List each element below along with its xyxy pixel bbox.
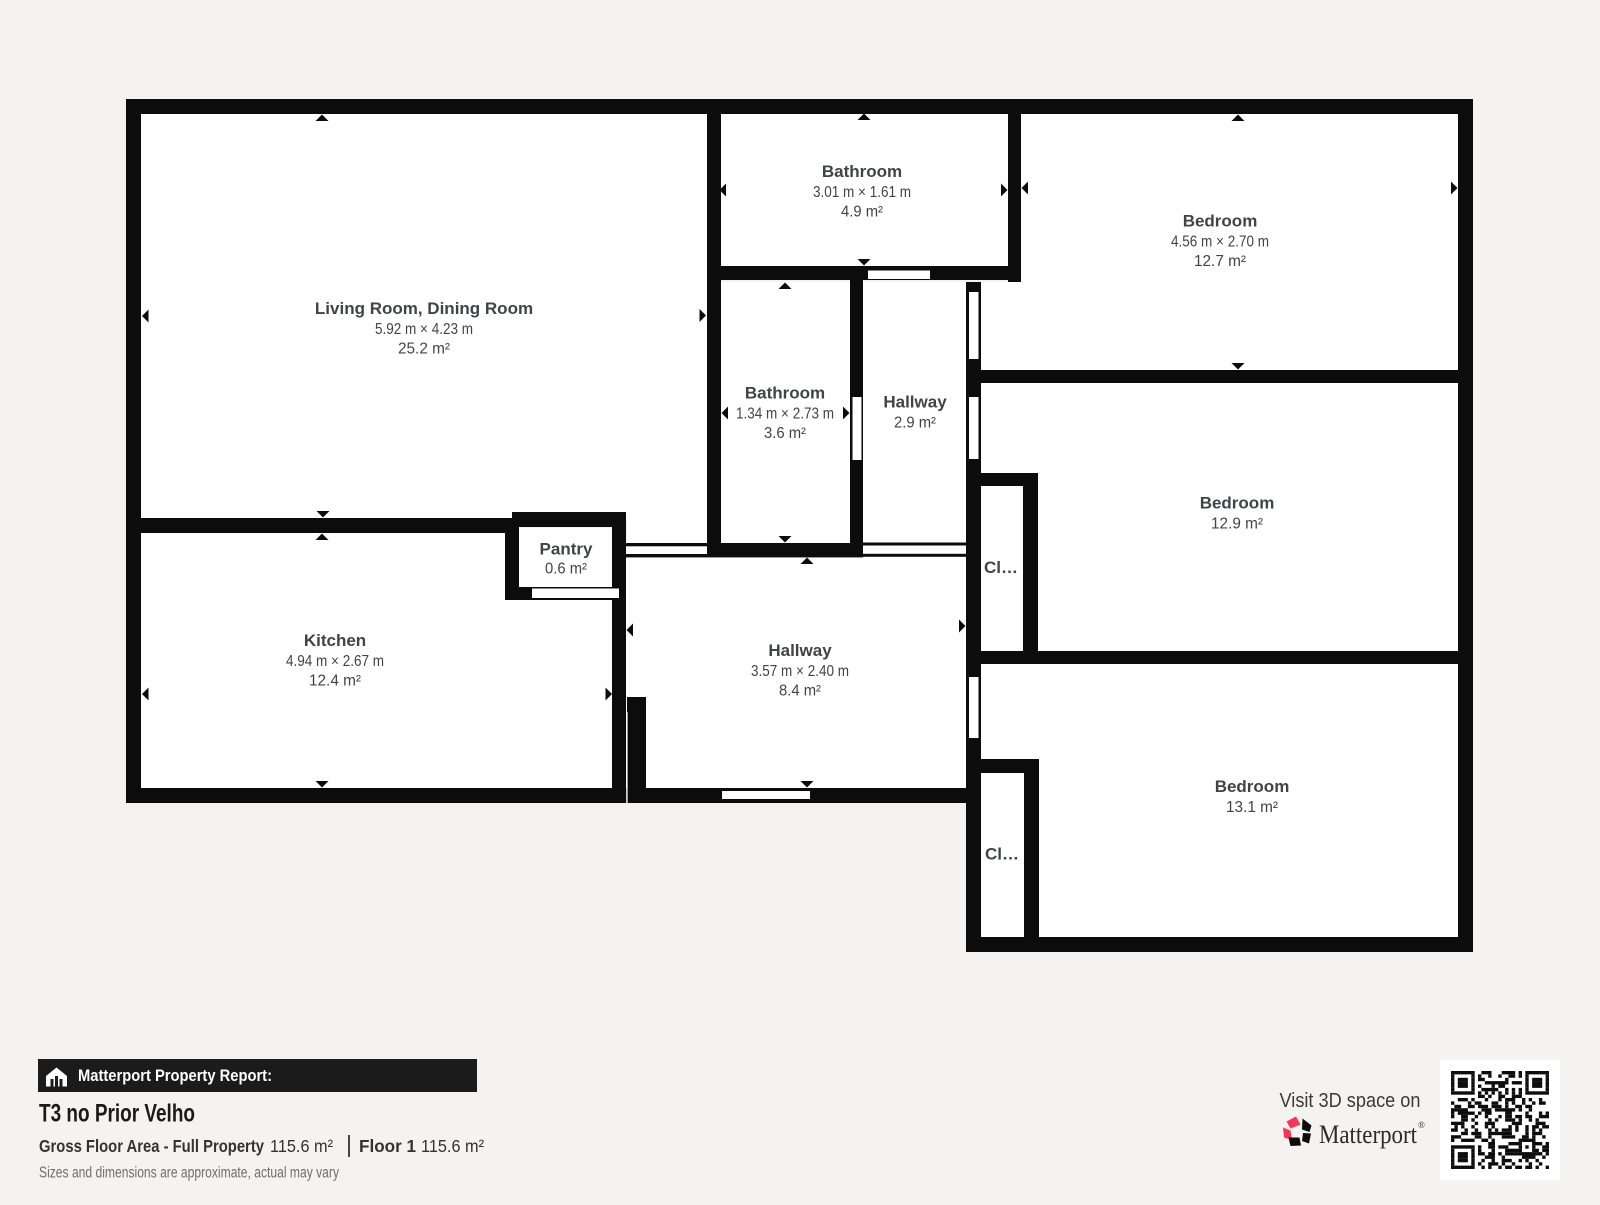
svg-text:1.34 m × 2.73 m: 1.34 m × 2.73 m	[736, 406, 834, 423]
svg-text:0.6 m²: 0.6 m²	[545, 561, 587, 578]
svg-text:Hallway: Hallway	[883, 393, 947, 412]
svg-text:8.4 m²: 8.4 m²	[779, 683, 821, 700]
svg-text:3.01 m × 1.61 m: 3.01 m × 1.61 m	[813, 184, 911, 201]
svg-text:12.4 m²: 12.4 m²	[309, 673, 361, 690]
svg-text:2.9 m²: 2.9 m²	[894, 415, 936, 432]
svg-text:3.57 m × 2.40 m: 3.57 m × 2.40 m	[751, 663, 849, 680]
svg-text:Cl…: Cl…	[984, 558, 1018, 577]
svg-text:13.1 m²: 13.1 m²	[1226, 799, 1278, 816]
svg-text:5.92 m × 4.23 m: 5.92 m × 4.23 m	[375, 321, 473, 338]
svg-text:T3 no Prior Velho: T3 no Prior Velho	[39, 1100, 195, 1128]
svg-text:Visit 3D space on: Visit 3D space on	[1280, 1089, 1421, 1112]
svg-text:Bedroom: Bedroom	[1200, 494, 1275, 513]
svg-text:Bathroom: Bathroom	[745, 384, 825, 403]
svg-text:4.9 m²: 4.9 m²	[841, 204, 883, 221]
svg-text:Sizes and dimensions are appro: Sizes and dimensions are approximate, ac…	[39, 1165, 339, 1182]
svg-text:Matterport: Matterport	[1319, 1120, 1418, 1149]
svg-text:25.2 m²: 25.2 m²	[398, 341, 450, 358]
svg-text:4.94 m × 2.67 m: 4.94 m × 2.67 m	[286, 653, 384, 670]
svg-text:12.7 m²: 12.7 m²	[1194, 253, 1246, 270]
svg-text:4.56 m × 2.70 m: 4.56 m × 2.70 m	[1171, 234, 1269, 251]
svg-text:Hallway: Hallway	[768, 641, 832, 660]
svg-text:Bedroom: Bedroom	[1215, 777, 1290, 796]
svg-text:115.6 m²: 115.6 m²	[421, 1136, 484, 1156]
svg-text:Pantry: Pantry	[540, 540, 593, 559]
svg-text:Floor 1: Floor 1	[359, 1136, 416, 1156]
svg-text:Bedroom: Bedroom	[1183, 212, 1258, 231]
svg-text:Kitchen: Kitchen	[304, 631, 366, 650]
svg-text:3.6 m²: 3.6 m²	[764, 425, 806, 442]
svg-text:Gross Floor Area - Full Proper: Gross Floor Area - Full Property	[39, 1136, 264, 1156]
svg-text:Cl…: Cl…	[985, 845, 1019, 864]
svg-text:Matterport Property Report:: Matterport Property Report:	[78, 1067, 272, 1085]
svg-text:Living Room, Dining Room: Living Room, Dining Room	[315, 299, 533, 318]
svg-text:12.9 m²: 12.9 m²	[1211, 516, 1263, 533]
svg-text:115.6 m²: 115.6 m²	[270, 1136, 333, 1156]
svg-text:®: ®	[1418, 1120, 1425, 1130]
svg-text:Bathroom: Bathroom	[822, 162, 902, 181]
